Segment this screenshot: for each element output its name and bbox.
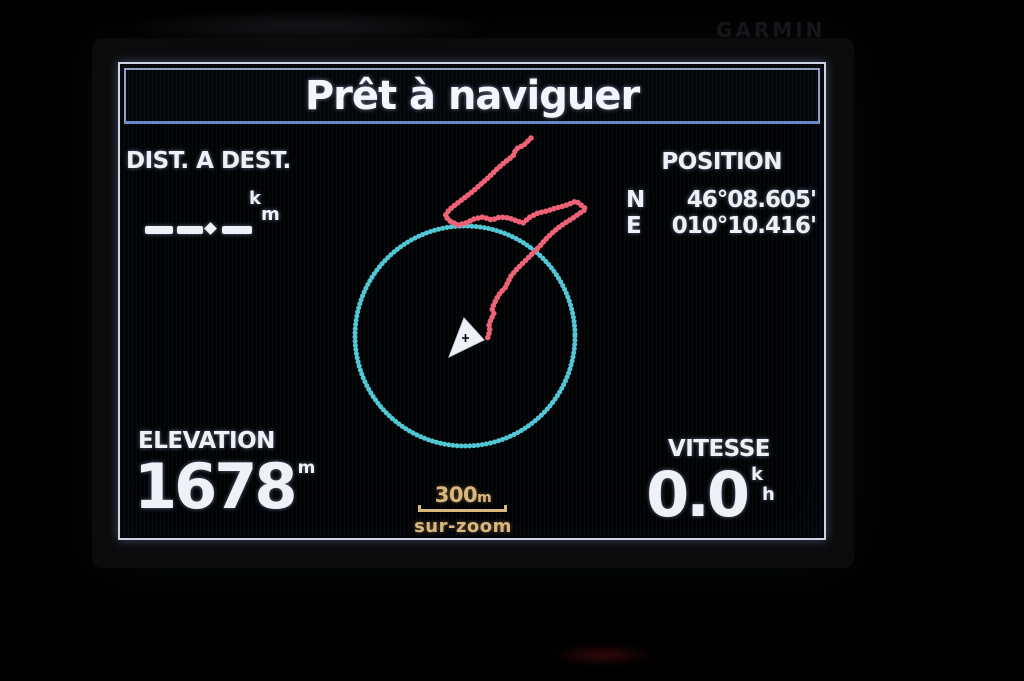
gps-screen: Prêt à naviguer DIST. A DEST. k m POSITI… xyxy=(118,62,826,540)
status-title-bar: Prêt à naviguer xyxy=(124,68,820,124)
status-title: Prêt à naviguer xyxy=(305,73,639,119)
brand-logo: GARMIN xyxy=(716,18,825,42)
device-model-reflection xyxy=(118,10,498,42)
photo-stage: GARMIN Prêt à naviguer DIST. A DEST. k m xyxy=(0,0,1024,681)
map-layer xyxy=(120,64,828,542)
reflection-smudge xyxy=(548,646,658,664)
